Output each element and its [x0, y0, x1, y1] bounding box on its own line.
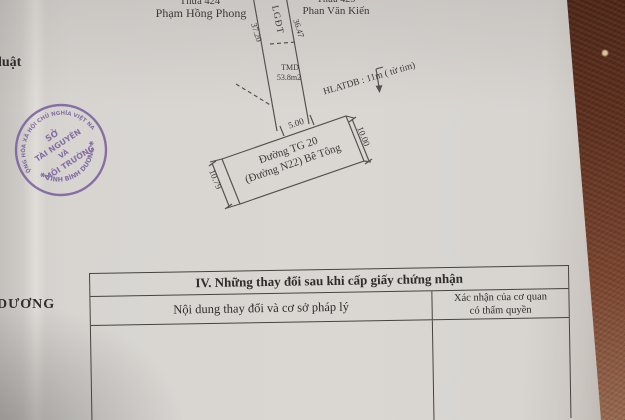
area-value: 53.8m2	[277, 73, 301, 82]
dim-road-left: 10.79	[207, 168, 224, 191]
dim-frontage: 5.00	[287, 116, 306, 131]
road-name: Đường TG 20 (Đường N22) Bê Tông	[239, 128, 343, 186]
changes-table: IV. Những thay đổi sau khi cấp giấy chứn…	[89, 265, 571, 420]
owner-right-name: Phan Văn Kiến	[302, 5, 370, 17]
owner-left-name: Phạm Hồng Phong	[156, 6, 247, 20]
table-section-title: IV. Những thay đổi sau khi cấp giấy chứn…	[195, 271, 463, 291]
photo-scene: luật DƯƠNG	[0, 0, 625, 420]
col-content-header-label: Nội dung thay đổi và cơ sở pháp lý	[173, 299, 349, 317]
empty-cell-content	[91, 320, 435, 420]
table-empty-row	[91, 318, 571, 420]
corridor-note: HLATDB : 11m ( từ tim)	[322, 60, 417, 98]
official-seal: CỘNG HÒA XÃ HỘI CHỦ NGHĨA VIỆT NAM ✱ TỈN…	[0, 88, 123, 212]
arrow-down-icon	[376, 85, 383, 93]
strip-label: LGĐT	[269, 5, 285, 36]
area-label: TMD	[281, 63, 299, 72]
col-content-header: Nội dung thay đổi và cơ sở pháp lý	[90, 291, 432, 325]
col-confirmation-header: Xác nhận của cơ quan có thẩm quyền	[432, 289, 568, 319]
col-confirmation-line2: có thẩm quyền	[433, 303, 569, 318]
empty-cell-confirmation	[433, 318, 571, 420]
dim-strip-left: 37.20	[249, 22, 264, 43]
